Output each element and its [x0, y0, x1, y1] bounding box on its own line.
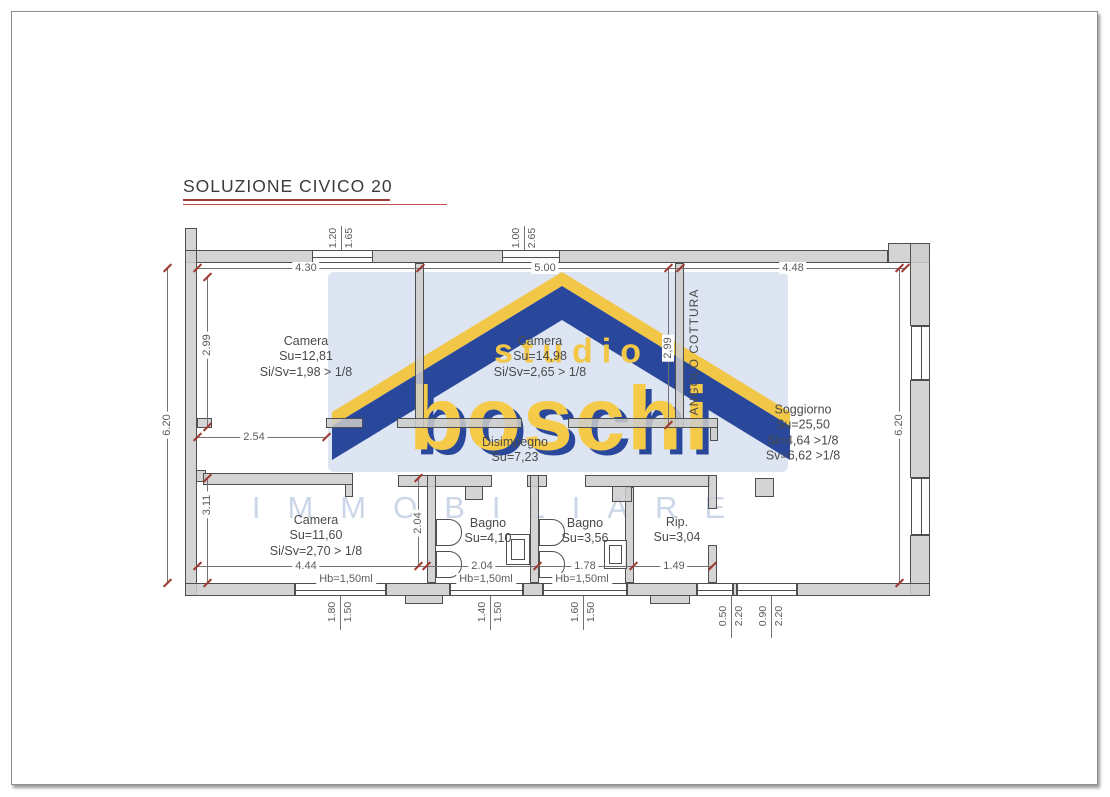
room-ratio: Si/Sv=2,65 > 1/8	[494, 365, 586, 380]
dim-tick	[322, 432, 331, 441]
room-su: Su=4,10	[465, 531, 512, 546]
dim-label-430: 4.30	[292, 262, 319, 274]
room-su: Su=25,50	[766, 418, 840, 433]
wall-bottom-tab2	[650, 595, 690, 604]
duct-bagno2	[612, 486, 632, 502]
wall-hall-c	[568, 418, 718, 428]
room-label-camera2: Camera Su=14,98 Si/Sv=2,65 > 1/8	[494, 334, 586, 380]
room-label-bagno1: Bagno Su=4,10	[465, 516, 512, 547]
wall-partition-v1	[415, 263, 424, 428]
dim-line-window-t2	[524, 226, 525, 250]
room-name: Rip.	[654, 515, 701, 530]
dim-line-window-b5	[771, 596, 772, 638]
win-label-b2-w: 1.40	[476, 602, 488, 622]
room-label-bagno2: Bagno Su=3,56	[562, 516, 609, 547]
room-si: Si=4,64 >1/8	[766, 433, 840, 448]
win-label-t1-h: 1.65	[343, 228, 355, 248]
win-label-b3-h: 1.50	[585, 602, 597, 622]
title-underline-thin	[183, 204, 447, 205]
wall-rip-right-a	[708, 475, 717, 509]
wall-hall-jamb	[710, 427, 718, 441]
dim-line-window-b2	[490, 596, 491, 630]
room-name: Camera	[494, 334, 586, 349]
dim-label-178: 1.78	[571, 560, 598, 572]
hb-label-2: Hb=1,50ml	[456, 573, 516, 585]
win-label-b5-w: 0.90	[757, 606, 769, 626]
room-ratio: Si/Sv=2,70 > 1/8	[270, 544, 362, 559]
pillar-soggiorno	[755, 478, 774, 497]
hb-label-3: Hb=1,50ml	[552, 573, 612, 585]
dim-tick	[163, 578, 172, 587]
window-bottom-5	[737, 583, 797, 596]
room-ratio: Si/Sv=1,98 > 1/8	[260, 365, 352, 380]
win-label-b3-w: 1.60	[569, 602, 581, 622]
room-label-soggiorno: Soggiorno Su=25,50 Si=4,64 >1/8 Sv=6,62 …	[766, 403, 840, 464]
wall-bottom-c	[523, 583, 543, 596]
floor-plan: SOLUZIONE CIVICO 20	[0, 0, 1110, 797]
room-su: Su=3,56	[562, 531, 609, 546]
win-label-b4-w: 0.50	[717, 606, 729, 626]
dim-label-448: 4.48	[779, 262, 806, 274]
wall-right-b	[910, 380, 930, 478]
win-label-t2-h: 2.65	[526, 228, 538, 248]
wall-partition-v2	[675, 263, 684, 428]
window-right-2	[911, 478, 930, 535]
window-top-1	[312, 250, 373, 263]
wall-left	[185, 250, 197, 596]
duct-bagno1	[465, 486, 483, 500]
dim-label-204: 2.04	[468, 560, 495, 572]
dim-label-204-vert: 2.04	[412, 509, 424, 536]
dim-label-620-left: 6.20	[161, 411, 173, 438]
wall-bottom-e	[797, 583, 930, 596]
dim-line-window-b1	[340, 596, 341, 630]
dim-label-500: 5.00	[531, 262, 558, 274]
title-underline-thick	[183, 199, 390, 201]
wall-camera3-jamb	[345, 484, 353, 497]
win-label-t1-w: 1.20	[327, 228, 339, 248]
room-name: Camera	[270, 513, 362, 528]
window-bottom-4	[697, 583, 733, 596]
room-label-ripostiglio: Rip. Su=3,04	[654, 515, 701, 546]
room-su: Su=7,23	[482, 450, 548, 465]
hb-label-1: Hb=1,50ml	[316, 573, 376, 585]
win-label-t2-w: 1.00	[510, 228, 522, 248]
room-label-angolo-cottura: ANGOLO COTTURA	[687, 289, 701, 416]
dim-line-window-b4	[731, 596, 732, 638]
dim-label-149: 1.49	[660, 560, 687, 572]
dim-line-window-b3	[583, 596, 584, 630]
room-label-disimpegno: Disimpegno Su=7,23	[482, 435, 548, 466]
wall-hall-b	[397, 418, 522, 428]
room-su: Su=14,98	[494, 349, 586, 364]
room-su: Su=12,81	[260, 349, 352, 364]
win-label-b1-w: 1.80	[326, 602, 338, 622]
room-name: Bagno	[465, 516, 512, 531]
room-su: Su=3,04	[654, 530, 701, 545]
dim-line-window-t1	[341, 226, 342, 250]
wall-camera3-top	[203, 473, 353, 485]
dim-label-620-right: 6.20	[893, 411, 905, 438]
wall-bottom-tab1	[405, 595, 443, 604]
room-su: Su=11,60	[270, 528, 362, 543]
wall-hall-a	[326, 418, 363, 428]
win-label-b1-h: 1.50	[342, 602, 354, 622]
wall-left-stub	[185, 228, 197, 251]
room-name: Soggiorno	[766, 403, 840, 418]
room-name: Disimpegno	[482, 435, 548, 450]
dim-label-311: 3.11	[201, 492, 213, 519]
win-label-b2-h: 1.50	[492, 602, 504, 622]
page-title: SOLUZIONE CIVICO 20	[183, 176, 393, 197]
wall-right-a	[910, 243, 930, 326]
wall-bottom-a	[185, 583, 295, 596]
toilet-bagno1	[436, 519, 462, 546]
room-name: Bagno	[562, 516, 609, 531]
room-name: Camera	[260, 334, 352, 349]
room-sv: Sv=6,62 >1/8	[766, 448, 840, 463]
wall-bath-top-c	[585, 475, 710, 487]
dim-label-299-left: 2.99	[201, 331, 213, 358]
win-label-b5-h: 2.20	[773, 606, 785, 626]
dim-label-444: 4.44	[292, 560, 319, 572]
room-label-camera1: Camera Su=12,81 Si/Sv=1,98 > 1/8	[260, 334, 352, 380]
dim-label-254: 2.54	[240, 431, 267, 443]
window-right-1	[911, 326, 930, 380]
room-label-camera3: Camera Su=11,60 Si/Sv=2,70 > 1/8	[270, 513, 362, 559]
win-label-b4-h: 2.20	[733, 606, 745, 626]
dim-label-299-mid: 2,99	[662, 334, 674, 361]
